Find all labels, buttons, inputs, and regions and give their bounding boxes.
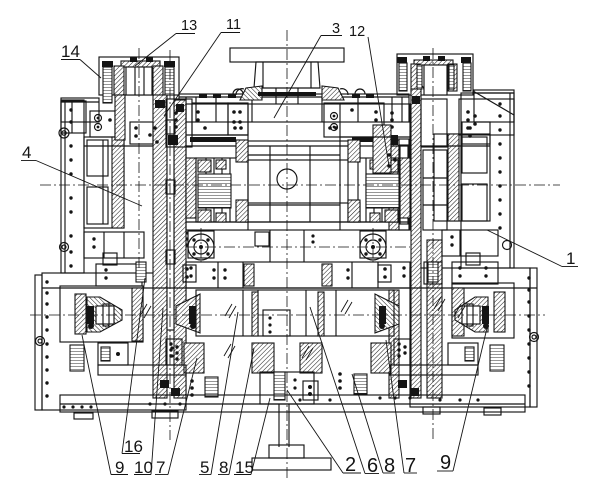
svg-text:12: 12 [349,24,365,40]
svg-text:7: 7 [405,455,416,477]
svg-text:8: 8 [384,455,395,477]
svg-text:13: 13 [181,18,197,34]
svg-text:14: 14 [61,42,80,61]
svg-text:11: 11 [226,17,241,33]
svg-text:4: 4 [22,143,31,162]
svg-text:1: 1 [566,249,575,268]
svg-text:3: 3 [332,21,340,37]
